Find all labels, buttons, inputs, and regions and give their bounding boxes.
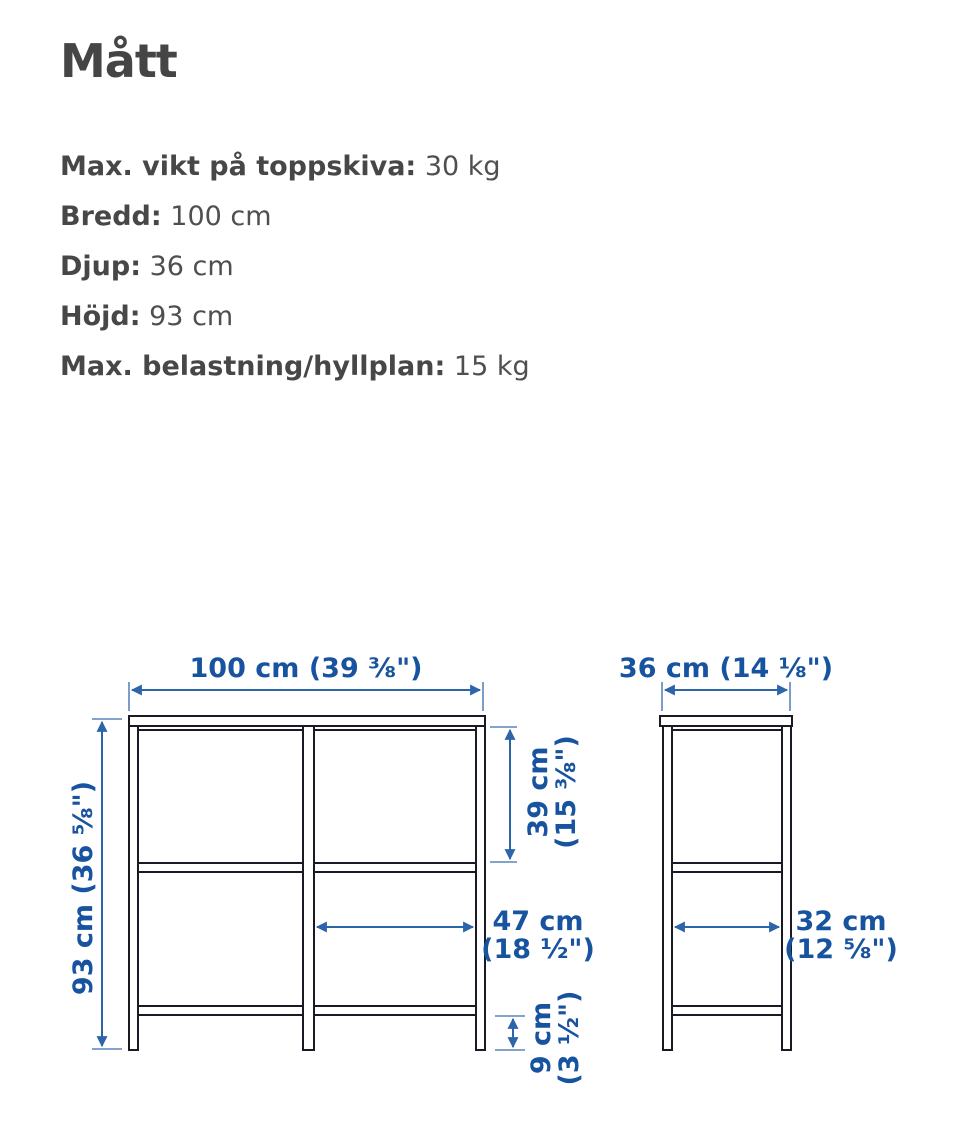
- side-bottom-shelf: [672, 1006, 782, 1015]
- spec-item-width: Bredd: 100 cm: [60, 192, 530, 242]
- front-left-leg: [129, 726, 138, 1050]
- side-middle-shelf: [672, 863, 782, 872]
- spec-item-max-shelf-load: Max. belastning/hyllplan: 15 kg: [60, 342, 530, 392]
- side-inner-depth-label-line2: (12 ⅝"): [784, 934, 898, 965]
- spec-label: Djup:: [60, 251, 141, 282]
- shelf-spacing-dimension: 39 cm (15 ⅜"): [490, 727, 582, 862]
- spec-label: Max. belastning/hyllplan:: [60, 351, 445, 382]
- front-view-drawing: [129, 716, 485, 1050]
- spec-label: Höjd:: [60, 301, 141, 332]
- shelf-spacing-label-line1: 39 cm: [523, 746, 554, 837]
- bottom-clearance-label-line2: (3 ½"): [554, 991, 585, 1086]
- spec-list: Max. vikt på toppskiva: 30 kg Bredd: 100…: [60, 142, 530, 392]
- side-top-panel: [660, 716, 792, 726]
- shelf-spacing-label-line2: (15 ⅜"): [551, 735, 582, 849]
- front-right-leg: [476, 726, 485, 1050]
- side-inner-depth-label-line1: 32 cm: [795, 906, 886, 937]
- inner-width-label-line1: 47 cm: [492, 906, 583, 937]
- spec-value: 15 kg: [454, 351, 530, 382]
- spec-value: 100 cm: [170, 201, 271, 232]
- spec-item-depth: Djup: 36 cm: [60, 242, 530, 292]
- front-center-post: [303, 726, 314, 1050]
- spec-label: Max. vikt på toppskiva:: [60, 151, 416, 182]
- side-back-leg: [782, 726, 791, 1050]
- front-height-label: 93 cm (36 ⅝"): [68, 781, 99, 995]
- front-width-dimension: 100 cm (39 ⅜"): [129, 653, 483, 711]
- side-depth-dimension: 36 cm (14 ⅛"): [619, 653, 833, 711]
- spec-value: 30 kg: [425, 151, 501, 182]
- product-dimensions-page: { "title": "Mått", "specs": [ { "label":…: [0, 0, 960, 1134]
- page-title: Mått: [60, 34, 177, 88]
- side-view-drawing: [660, 716, 792, 1050]
- spec-label: Bredd:: [60, 201, 162, 232]
- front-top-panel: [129, 716, 485, 726]
- inner-width-label-line2: (18 ½"): [481, 934, 595, 965]
- bottom-clearance-label-line1: 9 cm: [526, 1002, 557, 1074]
- side-depth-label: 36 cm (14 ⅛"): [619, 653, 833, 684]
- spec-value: 93 cm: [149, 301, 233, 332]
- front-width-label: 100 cm (39 ⅜"): [190, 653, 423, 684]
- side-front-leg: [663, 726, 672, 1050]
- front-height-dimension: 93 cm (36 ⅝"): [68, 719, 122, 1049]
- spec-value: 36 cm: [150, 251, 234, 282]
- bottom-clearance-dimension: 9 cm (3 ½"): [495, 991, 585, 1086]
- spec-item-max-top-weight: Max. vikt på toppskiva: 30 kg: [60, 142, 530, 192]
- inner-width-dimension: 47 cm (18 ½"): [317, 906, 595, 965]
- dimension-diagram: 100 cm (39 ⅜") 36 cm (14 ⅛") 93 cm (36 ⅝…: [0, 620, 960, 1100]
- spec-item-height: Höjd: 93 cm: [60, 292, 530, 342]
